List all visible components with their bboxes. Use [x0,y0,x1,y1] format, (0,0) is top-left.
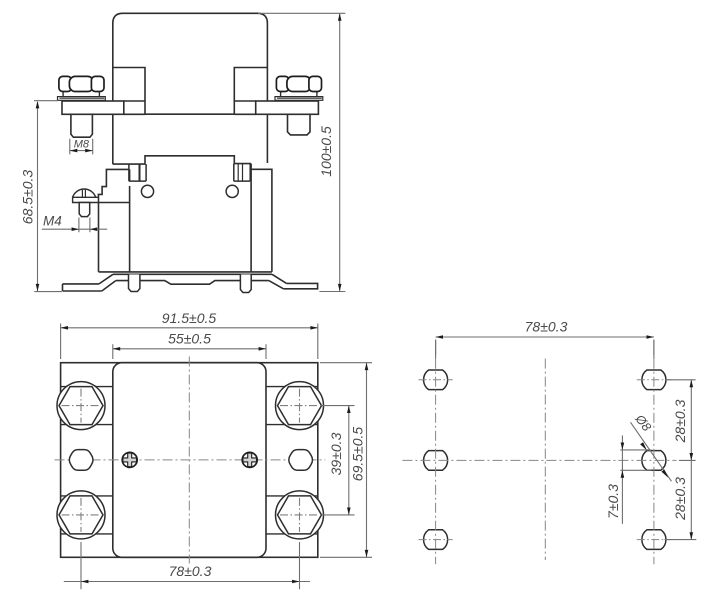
svg-text:69.5±0.5: 69.5±0.5 [350,427,366,482]
svg-text:Ø8: Ø8 [632,411,654,434]
svg-text:M4: M4 [43,214,62,229]
svg-text:28±0.3: 28±0.3 [672,399,688,443]
svg-text:100±0.5: 100±0.5 [318,126,334,177]
svg-text:28±0.3: 28±0.3 [672,477,688,521]
svg-text:39±0.3: 39±0.3 [328,432,344,475]
svg-text:68.5±0.3: 68.5±0.3 [20,170,36,225]
svg-text:M8: M8 [74,139,90,151]
svg-text:78±0.3: 78±0.3 [525,319,568,335]
svg-text:78±0.3: 78±0.3 [169,563,212,579]
svg-text:91.5±0.5: 91.5±0.5 [162,310,217,326]
svg-text:7±0.3: 7±0.3 [605,484,621,519]
svg-text:55±0.5: 55±0.5 [168,331,211,347]
